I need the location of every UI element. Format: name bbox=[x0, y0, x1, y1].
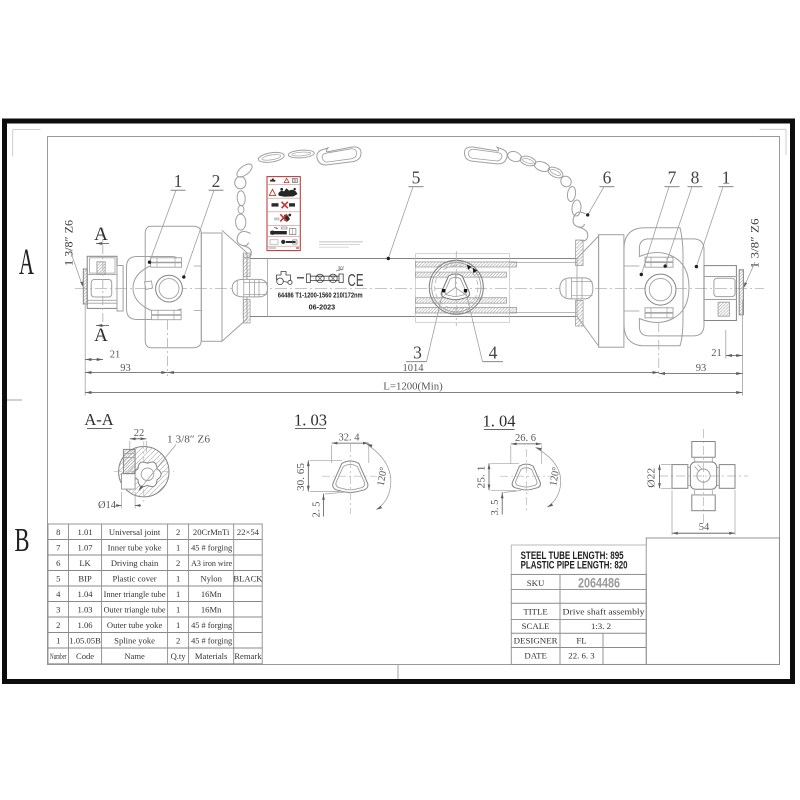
svg-text:25. 1: 25. 1 bbox=[477, 466, 488, 489]
svg-text:B: B bbox=[15, 522, 30, 559]
svg-text:2: 2 bbox=[176, 636, 180, 646]
svg-text:45 # forging: 45 # forging bbox=[191, 636, 233, 646]
svg-text:93: 93 bbox=[696, 363, 707, 374]
svg-text:1. 04: 1. 04 bbox=[483, 411, 516, 430]
svg-text:Plastic cover: Plastic cover bbox=[113, 574, 157, 584]
svg-text:2064486: 2064486 bbox=[578, 576, 620, 591]
svg-text:3. 5: 3. 5 bbox=[490, 500, 501, 516]
svg-text:21: 21 bbox=[711, 348, 722, 359]
svg-text:Inner triangle tube: Inner triangle tube bbox=[104, 589, 166, 599]
svg-text:54: 54 bbox=[699, 522, 710, 533]
svg-text:2: 2 bbox=[176, 558, 180, 568]
svg-text:7: 7 bbox=[56, 543, 61, 553]
svg-text:1: 1 bbox=[176, 543, 180, 553]
svg-text:06-2023: 06-2023 bbox=[309, 302, 336, 311]
svg-text:Remark: Remark bbox=[234, 651, 262, 661]
svg-text:5: 5 bbox=[412, 168, 421, 188]
svg-text:1.03: 1.03 bbox=[78, 605, 93, 615]
svg-text:8: 8 bbox=[56, 527, 60, 537]
svg-text:2. 5: 2. 5 bbox=[311, 502, 322, 518]
svg-text:1:3. 2: 1:3. 2 bbox=[591, 621, 611, 631]
svg-text:2: 2 bbox=[212, 171, 221, 191]
svg-text:FL: FL bbox=[576, 636, 586, 646]
svg-text:1.04: 1.04 bbox=[78, 589, 94, 599]
svg-text:30. 65: 30. 65 bbox=[296, 463, 307, 491]
svg-text:LK: LK bbox=[79, 558, 91, 568]
svg-text:CE: CE bbox=[348, 270, 364, 290]
svg-text:1.06: 1.06 bbox=[78, 620, 94, 630]
svg-text:6: 6 bbox=[603, 168, 612, 188]
svg-text:3: 3 bbox=[413, 343, 422, 363]
svg-text:L=1200(Min): L=1200(Min) bbox=[383, 381, 443, 393]
svg-text:30°: 30° bbox=[338, 266, 345, 271]
svg-text:4: 4 bbox=[489, 343, 498, 363]
svg-text:Nylon: Nylon bbox=[200, 574, 222, 584]
svg-text:DESIGNER: DESIGNER bbox=[514, 636, 558, 646]
svg-text:Ø14: Ø14 bbox=[98, 500, 117, 511]
svg-text:2: 2 bbox=[56, 620, 60, 630]
svg-text:TITLE: TITLE bbox=[523, 607, 547, 617]
svg-text:22. 6. 3: 22. 6. 3 bbox=[568, 651, 595, 661]
svg-text:1014: 1014 bbox=[403, 363, 425, 374]
svg-text:A: A bbox=[94, 224, 108, 245]
svg-text:Inner tube yoke: Inner tube yoke bbox=[108, 543, 162, 553]
svg-text:A: A bbox=[94, 325, 108, 346]
svg-text:Code: Code bbox=[76, 651, 94, 661]
svg-text:1: 1 bbox=[56, 636, 60, 646]
svg-text:20CrMnTi: 20CrMnTi bbox=[193, 527, 230, 537]
svg-text:Outer triangle tube: Outer triangle tube bbox=[104, 605, 166, 615]
svg-text:1: 1 bbox=[174, 171, 183, 191]
svg-text:1: 1 bbox=[722, 168, 731, 188]
svg-text:1.01: 1.01 bbox=[78, 527, 93, 537]
svg-text:SKU: SKU bbox=[527, 578, 545, 588]
svg-text:A: A bbox=[19, 242, 34, 283]
svg-text:64486 T1-1200-1560 210/172nm: 64486 T1-1200-1560 210/172nm bbox=[278, 290, 363, 299]
svg-text:Name: Name bbox=[124, 651, 145, 661]
svg-text:93: 93 bbox=[120, 363, 131, 374]
svg-text:1: 1 bbox=[176, 589, 180, 599]
svg-text:45 # forging: 45 # forging bbox=[191, 543, 233, 553]
svg-text:8: 8 bbox=[691, 168, 700, 188]
svg-text:1.05.05B: 1.05.05B bbox=[69, 636, 101, 646]
svg-text:Outer tube yoke: Outer tube yoke bbox=[107, 620, 163, 630]
svg-text:Materials: Materials bbox=[195, 651, 228, 661]
svg-text:1: 1 bbox=[176, 605, 180, 615]
svg-text:16Mn: 16Mn bbox=[201, 605, 222, 615]
svg-text:1: 1 bbox=[176, 620, 180, 630]
svg-text:Driving chain: Driving chain bbox=[111, 558, 159, 568]
svg-text:21: 21 bbox=[110, 350, 121, 361]
svg-text:1 3/8″ Z6: 1 3/8″ Z6 bbox=[167, 435, 210, 446]
svg-text:7: 7 bbox=[668, 168, 677, 188]
svg-text:SCALE: SCALE bbox=[522, 621, 550, 631]
svg-text:22×54: 22×54 bbox=[237, 527, 260, 537]
svg-text:A-A: A-A bbox=[84, 410, 113, 429]
svg-text:26. 6: 26. 6 bbox=[515, 433, 536, 444]
svg-text:DATE: DATE bbox=[524, 651, 546, 661]
svg-text:Drive shaft assembly: Drive shaft assembly bbox=[563, 607, 646, 617]
svg-text:BLACK: BLACK bbox=[233, 574, 263, 584]
svg-text:Number: Number bbox=[50, 651, 67, 661]
svg-text:6: 6 bbox=[56, 558, 61, 568]
svg-text:2: 2 bbox=[176, 527, 180, 537]
svg-text:Q.ty: Q.ty bbox=[171, 651, 187, 661]
svg-text:Ø22: Ø22 bbox=[647, 468, 658, 488]
svg-text:1.07: 1.07 bbox=[78, 543, 94, 553]
svg-text:32. 4: 32. 4 bbox=[339, 432, 361, 443]
svg-text:Universal joint: Universal joint bbox=[109, 527, 161, 537]
svg-text:BIP: BIP bbox=[78, 574, 92, 584]
svg-text:5: 5 bbox=[56, 574, 60, 584]
svg-text:16Mn: 16Mn bbox=[201, 589, 222, 599]
svg-text:4: 4 bbox=[56, 589, 61, 599]
svg-text:45 # forging: 45 # forging bbox=[191, 620, 233, 630]
svg-text:A3 iron wire: A3 iron wire bbox=[191, 558, 232, 568]
svg-text:PLASTIC PIPE LENGTH: 820: PLASTIC PIPE LENGTH: 820 bbox=[521, 559, 628, 571]
svg-text:Spline yoke: Spline yoke bbox=[114, 636, 155, 646]
svg-text:1: 1 bbox=[176, 574, 180, 584]
svg-text:1 3/8″ Z6: 1 3/8″ Z6 bbox=[748, 218, 762, 268]
svg-text:1. 03: 1. 03 bbox=[294, 410, 327, 429]
svg-text:22: 22 bbox=[134, 428, 145, 439]
svg-text:3: 3 bbox=[56, 605, 60, 615]
